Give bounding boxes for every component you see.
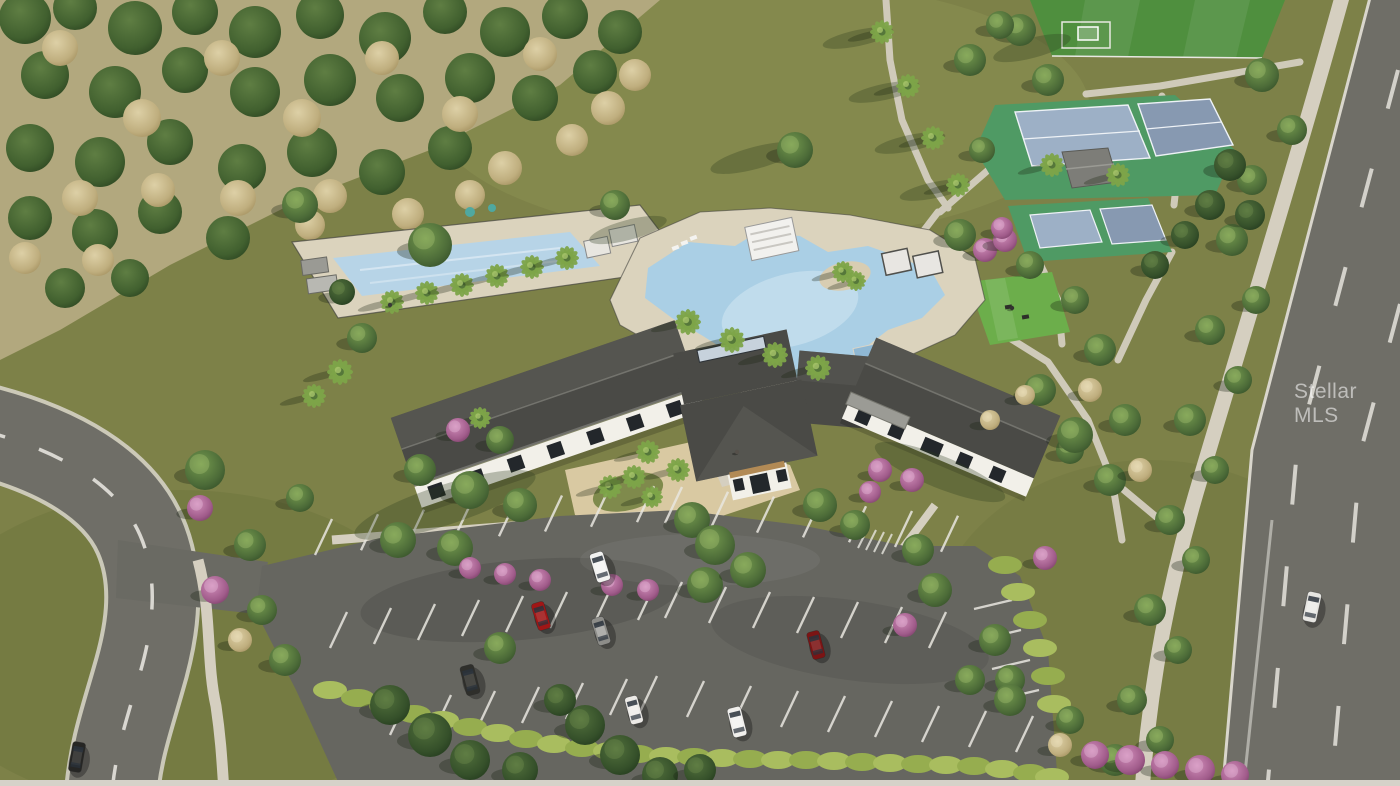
scrub-brush — [591, 91, 625, 125]
scrub-tree — [206, 216, 250, 260]
stellar-mls-watermark: Stellar MLS — [1294, 380, 1400, 428]
scrub-brush — [9, 242, 41, 274]
hedge — [988, 556, 1022, 574]
entry-door — [749, 473, 770, 494]
scrub-brush — [220, 180, 256, 216]
scrub-tree — [598, 10, 642, 54]
scrub-brush — [556, 124, 588, 156]
scrub-brush — [442, 96, 478, 132]
pool-toy — [488, 204, 496, 212]
scrub-tree — [6, 124, 54, 172]
scrub-brush — [62, 180, 98, 216]
scrub-tree — [111, 259, 149, 297]
scrub-tree — [480, 7, 530, 57]
soccer-goal — [1078, 27, 1098, 40]
scrub-brush — [523, 37, 557, 71]
tennis-courts — [975, 95, 1235, 200]
bottom-strip — [0, 780, 1400, 786]
aerial-rendering: Stellar MLS — [0, 0, 1400, 786]
hedge — [1001, 583, 1035, 601]
scrub-brush — [365, 41, 399, 75]
scrub-brush — [283, 99, 321, 137]
scrub-tree — [162, 47, 208, 93]
scrub-brush — [141, 173, 175, 207]
scrub-brush — [42, 30, 78, 66]
hedge — [1031, 667, 1065, 685]
scrub-tree — [512, 75, 558, 121]
scrub-tree — [573, 50, 617, 94]
scrub-tree — [75, 137, 125, 187]
hedge — [1013, 611, 1047, 629]
scrub-tree — [8, 196, 52, 240]
scrub-tree — [428, 126, 472, 170]
scrub-brush — [619, 59, 651, 91]
scrub-tree — [304, 54, 356, 106]
hedge — [1023, 639, 1057, 657]
scrub-tree — [108, 1, 162, 55]
scrub-brush — [455, 180, 485, 210]
pool-toy — [465, 207, 475, 217]
scrub-tree — [230, 67, 280, 117]
scrub-tree — [445, 53, 495, 103]
scrub-brush — [204, 40, 240, 76]
scene-canvas — [0, 0, 1400, 786]
hedge — [957, 757, 991, 775]
cabana — [301, 257, 329, 275]
scrub-tree — [376, 74, 424, 122]
scrub-tree — [359, 149, 405, 195]
scrub-tree — [45, 268, 85, 308]
scrub-brush — [488, 151, 522, 185]
scrub-brush — [313, 179, 347, 213]
soccer-field — [1030, 0, 1285, 58]
scrub-brush — [123, 99, 161, 137]
scrub-brush — [392, 198, 424, 230]
scrub-brush — [82, 244, 114, 276]
